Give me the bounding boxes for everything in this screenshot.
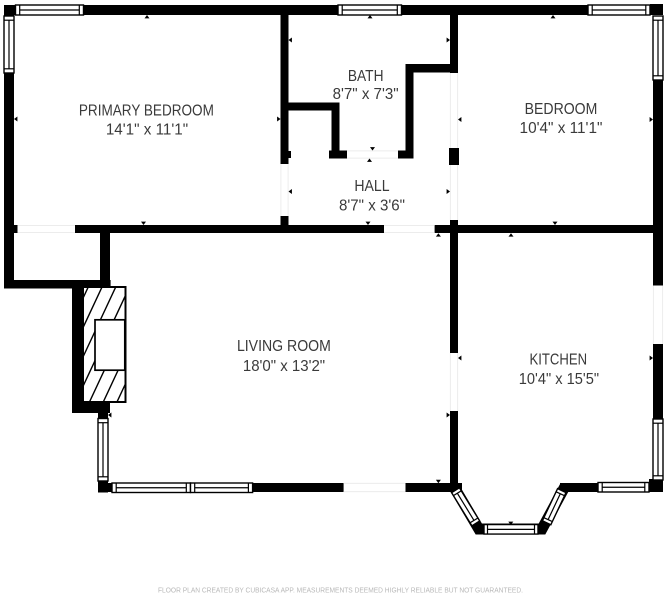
svg-text:LIVING ROOM: LIVING ROOM [237,338,331,355]
svg-text:KITCHEN: KITCHEN [530,352,588,369]
svg-text:10'4" x 15'5": 10'4" x 15'5" [519,371,599,388]
svg-text:FLOOR PLAN CREATED BY CUBICASA: FLOOR PLAN CREATED BY CUBICASA APP. MEAS… [158,588,523,595]
svg-text:BEDROOM: BEDROOM [525,101,598,118]
svg-text:18'0" x 13'2": 18'0" x 13'2" [243,358,325,375]
svg-text:10'4" x 11'1": 10'4" x 11'1" [520,120,603,137]
svg-text:8'7" x 7'3": 8'7" x 7'3" [333,86,399,103]
svg-text:BATH: BATH [348,68,384,85]
svg-text:8'7" x 3'6": 8'7" x 3'6" [339,197,405,214]
svg-text:14'1" x 11'1": 14'1" x 11'1" [106,121,188,138]
svg-text:PRIMARY BEDROOM: PRIMARY BEDROOM [79,103,214,120]
svg-text:HALL: HALL [354,178,390,195]
